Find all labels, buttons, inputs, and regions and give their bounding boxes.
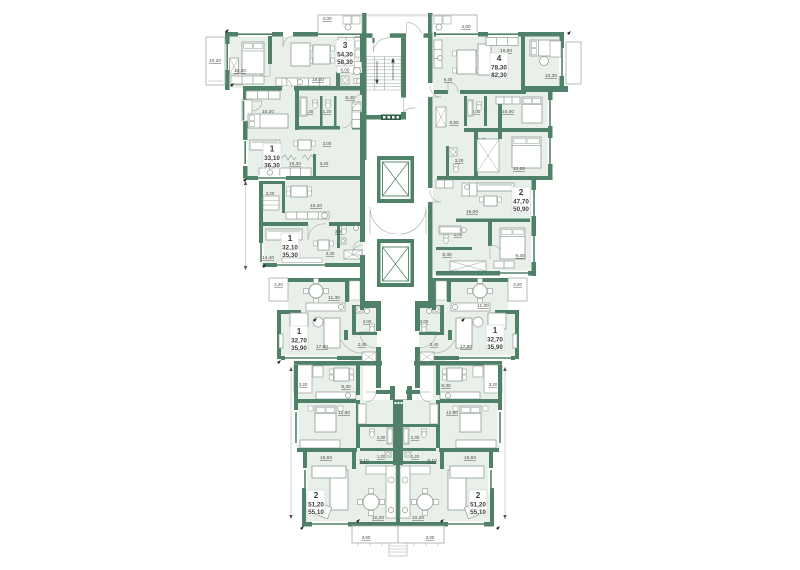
svg-text:1,20: 1,20 [323,109,332,114]
svg-text:16,30: 16,30 [289,161,301,167]
svg-text:17,00: 17,00 [460,344,472,350]
svg-text:2,30: 2,30 [411,435,420,440]
svg-text:4: 4 [497,54,502,63]
svg-text:12,00: 12,00 [513,166,525,172]
svg-text:3,20: 3,20 [266,191,275,196]
svg-text:47,70: 47,70 [513,198,529,205]
svg-text:35,90: 35,90 [487,344,503,351]
svg-text:8,00: 8,00 [341,68,350,73]
svg-text:11,00: 11,00 [477,303,489,309]
svg-text:82,30: 82,30 [491,72,507,79]
svg-text:2: 2 [314,491,319,500]
svg-text:16,00: 16,00 [466,209,478,215]
svg-text:32,70: 32,70 [291,337,307,344]
svg-text:54,30: 54,30 [337,51,353,58]
svg-text:1: 1 [288,234,293,243]
svg-text:1,20: 1,20 [377,454,386,459]
svg-text:1: 1 [493,326,498,335]
svg-text:10,20: 10,20 [234,68,246,74]
svg-text:36,30: 36,30 [264,163,280,170]
svg-text:2: 2 [476,491,481,500]
svg-text:3,20: 3,20 [299,382,308,387]
svg-text:51,20: 51,20 [470,501,486,508]
svg-text:8,10: 8,10 [427,458,437,464]
svg-text:1: 1 [270,145,275,154]
svg-text:10,00: 10,00 [502,109,514,115]
svg-text:3,40: 3,40 [320,161,329,166]
svg-text:6,40: 6,40 [444,77,453,82]
svg-text:3: 3 [343,41,348,50]
svg-text:3,20: 3,20 [455,158,464,163]
svg-text:17,00: 17,00 [316,344,328,350]
svg-text:2,30: 2,30 [377,435,386,440]
svg-text:8,10: 8,10 [359,458,369,464]
svg-text:3,40: 3,40 [326,251,335,256]
svg-text:55,10: 55,10 [308,509,324,516]
svg-text:8,30: 8,30 [442,252,452,258]
svg-text:3,20: 3,20 [513,282,522,287]
svg-text:2,00: 2,00 [323,141,332,146]
svg-text:2: 2 [519,188,524,197]
svg-text:16,50: 16,50 [464,455,476,461]
svg-text:32,70: 32,70 [487,336,503,343]
svg-text:10,30: 10,30 [545,73,557,79]
svg-text:9,50: 9,50 [449,120,459,126]
svg-text:11,30: 11,30 [328,295,340,301]
svg-text:3,90: 3,90 [426,535,435,540]
svg-text:10,40: 10,40 [310,203,322,209]
svg-text:12,90: 12,90 [338,410,350,416]
svg-text:78,30: 78,30 [491,64,507,71]
svg-text:1: 1 [297,327,302,336]
svg-text:55,10: 55,10 [470,509,486,516]
svg-text:4,00: 4,00 [322,16,332,22]
svg-text:14,40: 14,40 [262,255,274,261]
svg-text:2,40: 2,40 [430,342,439,347]
svg-text:50,90: 50,90 [513,206,529,213]
svg-text:12,90: 12,90 [446,410,458,416]
svg-text:10,20: 10,20 [372,515,384,521]
svg-text:8,30: 8,30 [441,383,451,389]
svg-text:4,00: 4,00 [461,24,471,30]
svg-text:3,20: 3,20 [489,382,498,387]
svg-text:35,90: 35,90 [291,345,307,352]
svg-text:3,20: 3,20 [274,282,283,287]
svg-text:3,00: 3,00 [363,319,372,324]
svg-text:51,20: 51,20 [308,501,324,508]
svg-text:16,50: 16,50 [320,455,332,461]
svg-text:3,00: 3,00 [420,319,429,324]
svg-text:58,30: 58,30 [337,59,353,66]
svg-text:33,10: 33,10 [264,155,280,162]
svg-text:1,20: 1,20 [411,454,420,459]
svg-text:16,00: 16,00 [312,77,324,83]
svg-text:10,20: 10,20 [412,515,424,521]
svg-text:32,10: 32,10 [282,244,298,251]
svg-text:3,90: 3,90 [362,535,371,540]
svg-text:10,20: 10,20 [209,58,221,64]
svg-text:9,30: 9,30 [341,384,351,390]
svg-text:2,40: 2,40 [358,342,367,347]
svg-text:9,40: 9,40 [515,253,525,259]
